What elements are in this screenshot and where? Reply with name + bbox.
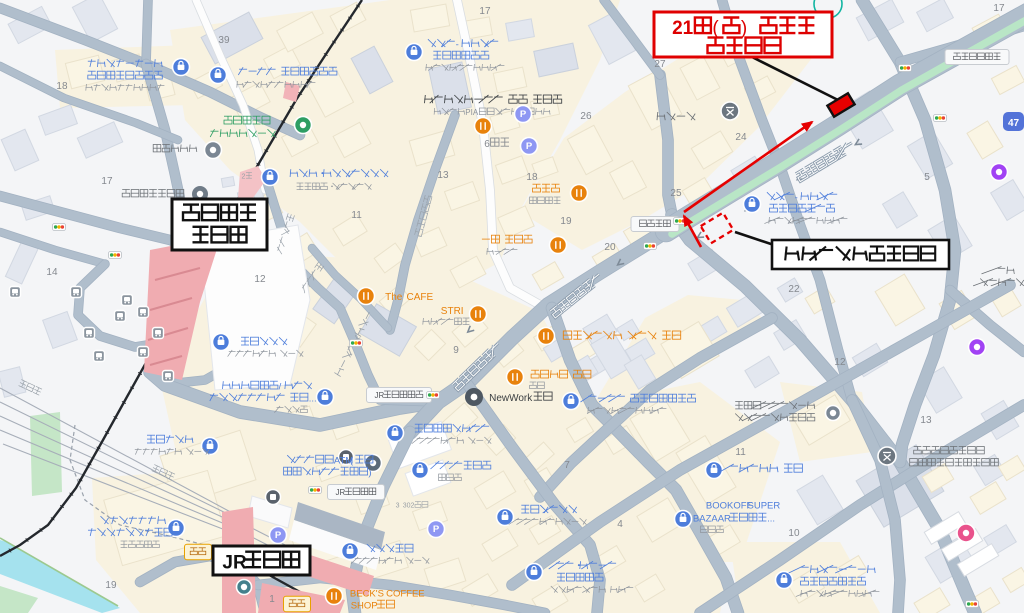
svg-text:-: - bbox=[795, 193, 798, 204]
svg-text:47: 47 bbox=[1008, 118, 1020, 129]
svg-text:302: 302 bbox=[403, 503, 415, 510]
svg-text:26: 26 bbox=[580, 111, 592, 122]
svg-text:19: 19 bbox=[105, 580, 117, 591]
svg-text:13: 13 bbox=[920, 415, 932, 426]
svg-text:21: 21 bbox=[672, 18, 694, 39]
svg-text:17: 17 bbox=[479, 6, 491, 17]
svg-text:9: 9 bbox=[453, 345, 459, 356]
svg-text:18: 18 bbox=[526, 172, 538, 183]
svg-text:): ) bbox=[368, 468, 371, 479]
svg-text:17: 17 bbox=[101, 176, 113, 187]
svg-text:24: 24 bbox=[735, 132, 747, 143]
svg-text:11: 11 bbox=[351, 210, 362, 221]
svg-text:13: 13 bbox=[437, 170, 449, 181]
svg-text:NewWork: NewWork bbox=[489, 393, 533, 404]
svg-text:P: P bbox=[275, 530, 282, 541]
svg-text:BOOKOFF: BOOKOFF bbox=[706, 501, 753, 512]
svg-text:11: 11 bbox=[735, 447, 746, 458]
svg-text:P: P bbox=[526, 141, 533, 152]
svg-text:22: 22 bbox=[788, 284, 800, 295]
svg-text:4: 4 bbox=[617, 519, 623, 530]
svg-text:-: - bbox=[456, 40, 459, 51]
svg-text:JR: JR bbox=[375, 391, 385, 400]
svg-text:19: 19 bbox=[560, 216, 572, 227]
svg-text:5: 5 bbox=[924, 172, 930, 183]
svg-text:10: 10 bbox=[788, 528, 800, 539]
svg-text:...: ... bbox=[767, 514, 775, 525]
svg-text:6: 6 bbox=[484, 139, 490, 150]
svg-text:/: / bbox=[279, 382, 282, 393]
svg-text:27: 27 bbox=[654, 59, 666, 70]
svg-text:JR: JR bbox=[222, 552, 247, 573]
svg-text:17: 17 bbox=[993, 3, 1005, 14]
svg-text:3: 3 bbox=[396, 503, 400, 510]
svg-text:JR: JR bbox=[336, 488, 346, 497]
svg-text:STRI: STRI bbox=[441, 306, 464, 317]
svg-text:7: 7 bbox=[564, 460, 570, 471]
svg-text:39: 39 bbox=[218, 35, 230, 46]
svg-text:1: 1 bbox=[269, 594, 275, 605]
svg-text:2: 2 bbox=[242, 174, 246, 181]
svg-text:): ) bbox=[741, 18, 747, 39]
svg-text:CAFE: CAFE bbox=[407, 292, 434, 303]
svg-text:SHOP: SHOP bbox=[351, 601, 378, 612]
svg-text:12: 12 bbox=[254, 274, 266, 285]
svg-text:P: P bbox=[433, 524, 440, 535]
svg-text:P: P bbox=[520, 109, 527, 120]
svg-text:25: 25 bbox=[670, 188, 682, 199]
svg-text:...: ... bbox=[309, 394, 317, 405]
svg-text:(: ( bbox=[712, 18, 719, 39]
svg-text:PIA: PIA bbox=[465, 108, 479, 117]
svg-text:12: 12 bbox=[834, 357, 846, 368]
svg-text:14: 14 bbox=[46, 267, 58, 278]
svg-text:BAZAAR: BAZAAR bbox=[693, 514, 731, 525]
svg-text:The: The bbox=[385, 292, 403, 303]
svg-text:18: 18 bbox=[56, 81, 68, 92]
svg-text:20: 20 bbox=[604, 242, 616, 253]
svg-text:SUPER: SUPER bbox=[748, 501, 781, 512]
svg-text:BECK'S: BECK'S bbox=[350, 589, 384, 600]
svg-text:COFFEE: COFFEE bbox=[386, 589, 425, 600]
